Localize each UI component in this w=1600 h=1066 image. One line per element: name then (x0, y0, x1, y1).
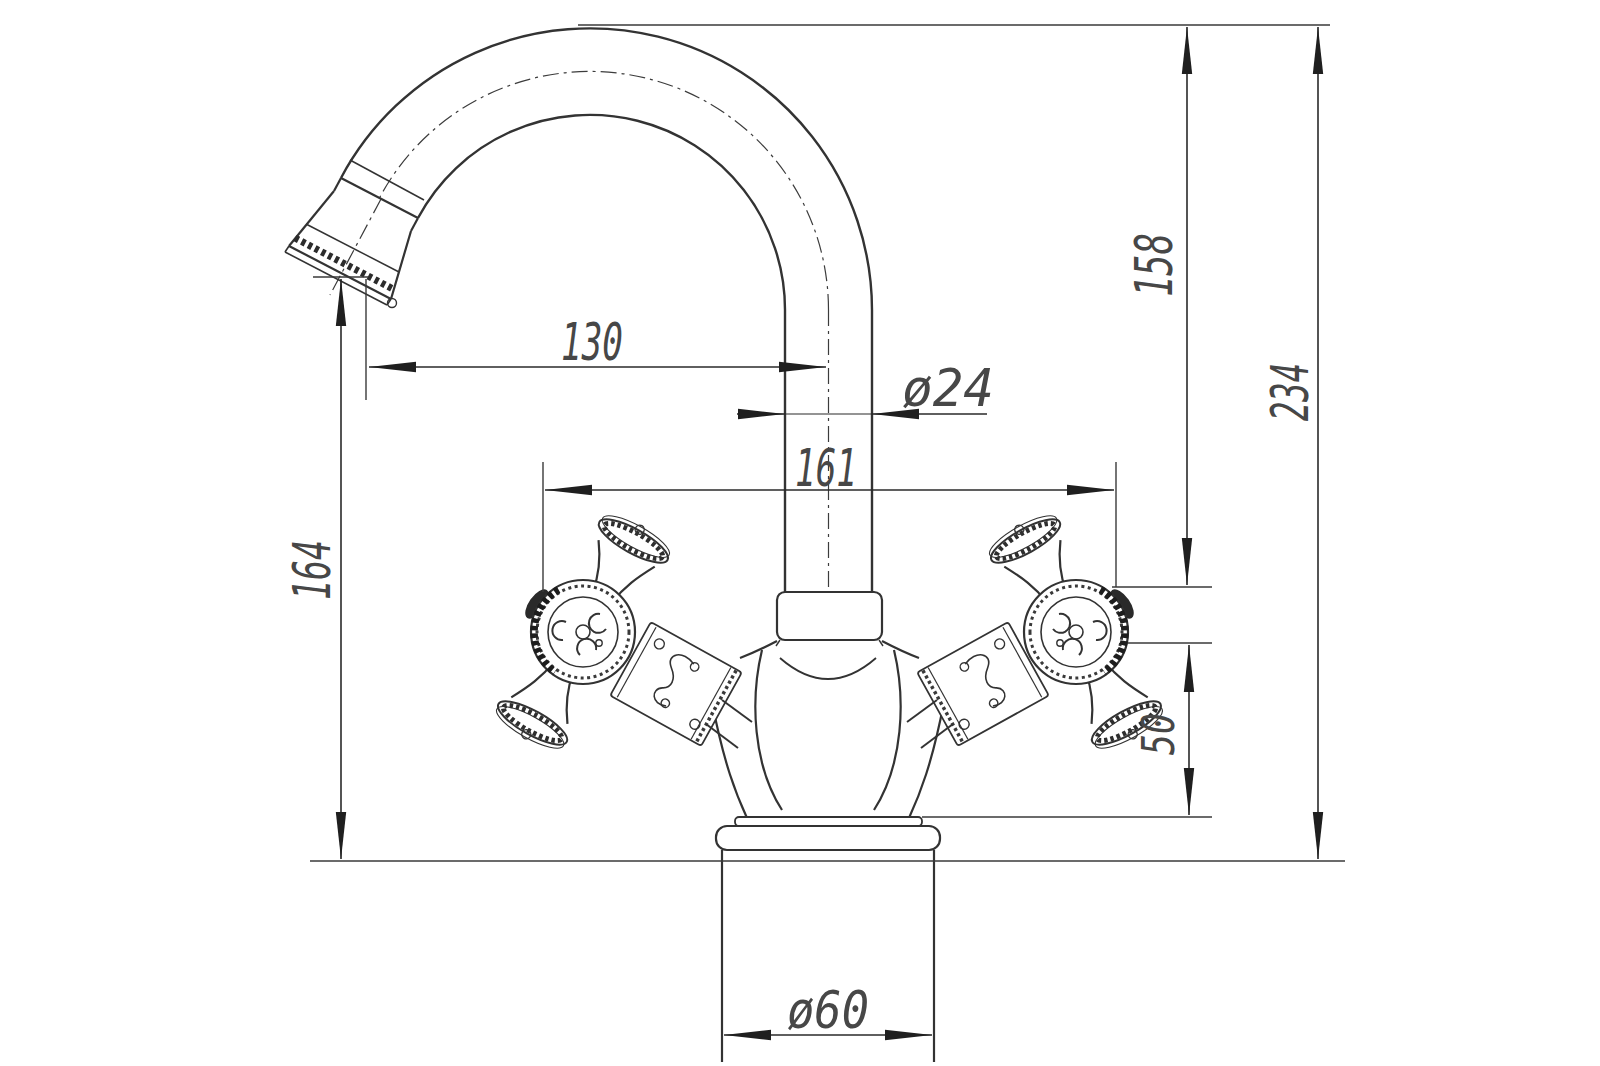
body-shoulder-left (740, 641, 777, 658)
body-flank-right (909, 702, 944, 818)
aerator-knurl-band (295, 238, 393, 289)
body-smile-arc (780, 658, 876, 679)
faucet-technical-drawing: 130 ø24 161 158 234 164 50 ø60 (0, 0, 1600, 1066)
body-waist-left (755, 650, 782, 810)
base-ring-top (735, 817, 922, 826)
spout-outer-arc (341, 28, 872, 310)
body-waist-right (874, 650, 901, 810)
dim-24-label: ø24 (902, 358, 994, 418)
handle-left (490, 507, 752, 757)
spout (341, 28, 872, 592)
dim-161-label: 161 (795, 438, 857, 498)
dim-164-label: 164 (282, 540, 342, 600)
body-shoulder-right (882, 641, 919, 658)
dim-130-label: 130 (561, 312, 623, 372)
drawing-canvas: 130 ø24 161 158 234 164 50 ø60 (0, 0, 1600, 1066)
spout-centerline-arc (379, 71, 828, 310)
dimension-lines (341, 27, 1318, 1035)
dim-234-label: 234 (1260, 363, 1320, 421)
base-torus (716, 826, 940, 850)
handle-right (907, 507, 1169, 757)
spout-inner-arc (418, 115, 785, 310)
dim-60-label: ø60 (787, 980, 869, 1040)
body-flank-left (712, 702, 747, 818)
dim-158-label: 158 (1124, 233, 1184, 297)
dim-50-label: 50 (1133, 713, 1184, 755)
body-top-block (776, 592, 883, 646)
spout-aerator (285, 160, 424, 308)
mixer-body (712, 641, 944, 818)
